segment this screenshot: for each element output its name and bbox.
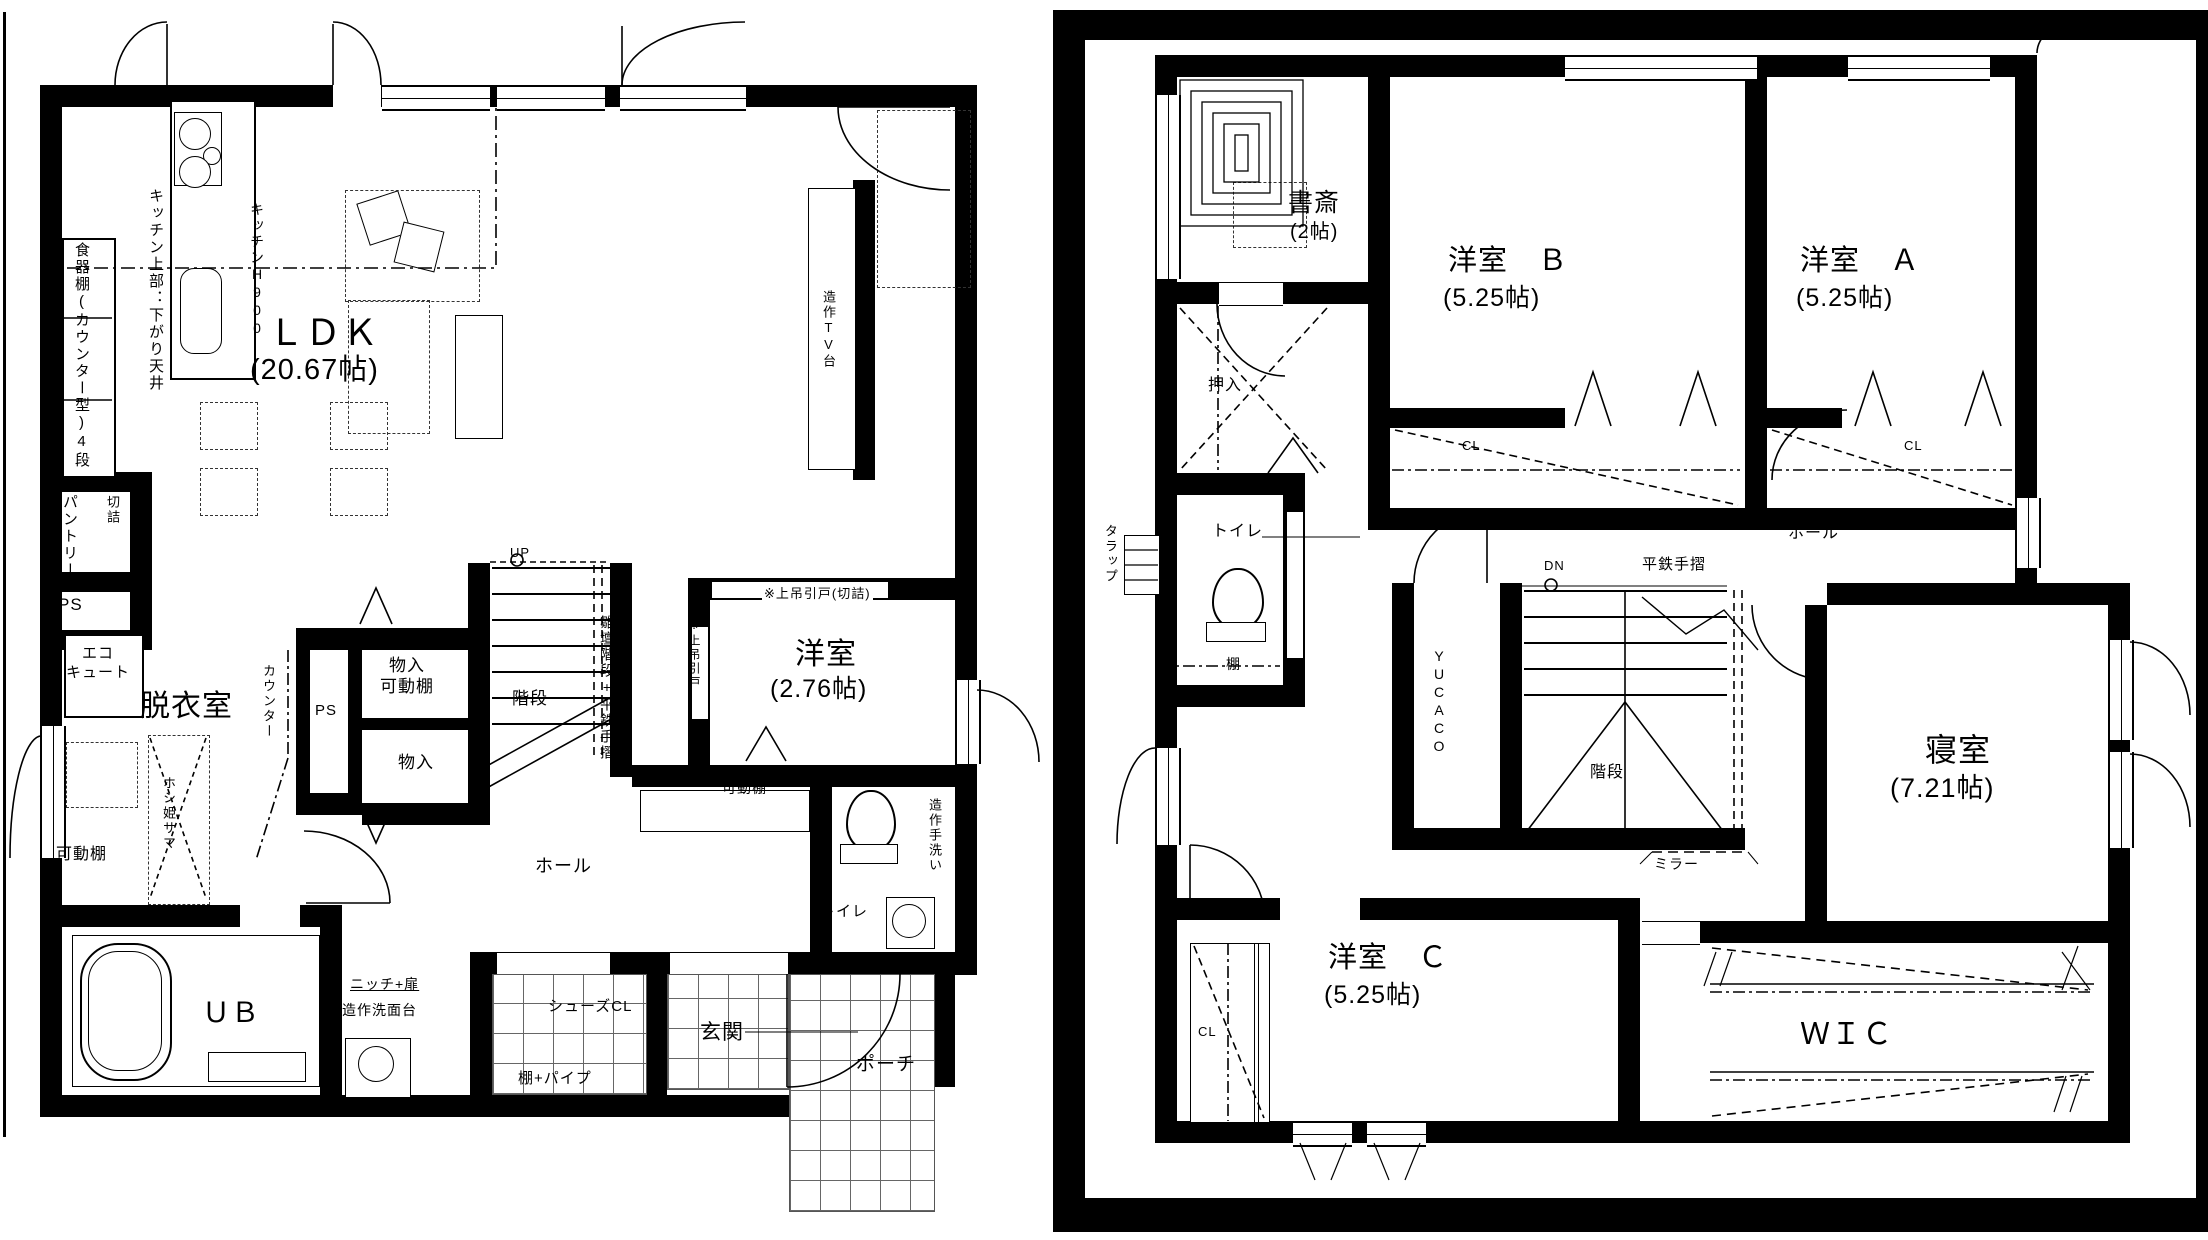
label-f1-slide_note2: ※上吊引戸 <box>688 618 700 690</box>
label-f1-shelf_pipe: 棚+パイプ <box>518 1070 592 1089</box>
label-f2-room_a: 洋室 Ａ <box>1800 243 1920 279</box>
label-f2-cl_b: CL <box>1460 438 1483 454</box>
wall <box>470 952 492 1095</box>
label-f2-cl_c: CL <box>1196 1024 1219 1040</box>
wall <box>853 180 875 480</box>
toilet-tank <box>1206 622 1266 642</box>
wall <box>1368 508 1745 530</box>
label-f1-ub: ＵＢ <box>202 995 260 1030</box>
sliding-door-opening <box>670 952 788 976</box>
label-f1-porch: ポーチ <box>856 1053 916 1077</box>
wall <box>1745 77 1767 530</box>
window <box>40 726 66 858</box>
circle-fixture <box>358 1046 394 1082</box>
wall <box>933 974 955 1087</box>
wall <box>1392 828 1745 850</box>
label-f1-kitchen_upper: キッチン上部：下がり天井 <box>148 188 163 392</box>
wall <box>40 1095 791 1117</box>
sliding-door-opening <box>497 952 610 976</box>
wall <box>1767 408 1842 428</box>
label-f1-storage1: 物入 可動棚 <box>380 655 434 698</box>
fixture-outline <box>1124 535 1160 595</box>
window <box>382 85 490 111</box>
label-f1-tv: 造作TV台 <box>822 290 835 369</box>
label-f2-tarap: タラップ <box>1104 524 1117 584</box>
stair-treads <box>492 567 610 747</box>
wall <box>320 905 342 1117</box>
label-f1-room_size: (2.76帖) <box>770 674 867 705</box>
fixture-outline <box>208 1052 306 1082</box>
wall <box>1390 408 1565 428</box>
label-f2-mirror: ミラー <box>1652 856 1701 874</box>
label-f1-room: 洋室 <box>795 636 857 674</box>
label-f1-genkan: 玄関 <box>700 1020 744 1046</box>
dashed-furniture <box>66 742 138 808</box>
door-opening <box>1280 898 1360 920</box>
label-f2-bedroom_size: (7.21帖) <box>1890 772 1995 806</box>
label-f2-toilet: トイレ <box>1212 522 1263 542</box>
window <box>620 85 746 111</box>
label-f1-storage2: 物入 <box>398 752 434 773</box>
label-f1-ldk: ＬＤＫ <box>268 310 379 355</box>
stair-treads <box>1524 590 1727 714</box>
label-f2-tana: 棚 <box>1224 656 1243 674</box>
fixture-outline <box>310 650 348 793</box>
dashed-furniture <box>200 402 258 450</box>
label-f1-handwash: 造作手洗い <box>928 798 941 873</box>
frame-left <box>1053 10 1085 1232</box>
label-f2-dn: DN <box>1542 558 1567 574</box>
label-f1-shoes: シューズCL <box>548 998 632 1017</box>
sliding-door-opening <box>1286 512 1304 658</box>
floor-plan-page: 食器棚(カウンター型)4段キッチン上部：下がり天井キッチンH900ＬＤＫ(20.… <box>0 0 2208 1240</box>
dashed-furniture <box>330 468 388 516</box>
wall <box>1392 583 1414 837</box>
label-f1-slide_note: ※上吊引戸(切詰) <box>762 586 873 602</box>
label-f2-wic: ＷＩＣ <box>1800 1016 1893 1054</box>
wall <box>1805 605 1827 921</box>
label-f2-study: 書斎 <box>1288 188 1340 219</box>
label-f2-room_a_size: (5.25帖) <box>1796 283 1893 314</box>
wall <box>1155 685 1305 707</box>
sliding-door-opening <box>1219 282 1283 306</box>
label-f2-hall: ホール <box>1788 524 1839 544</box>
label-f2-cl_a: CL <box>1902 438 1925 454</box>
circle-fixture <box>892 904 926 938</box>
label-f1-washstand: 造作洗面台 <box>342 1002 417 1020</box>
fixture-outline <box>88 951 162 1071</box>
label-f1-toilet: トイレ <box>820 903 868 922</box>
label-f2-oshiire: 押入 <box>1206 376 1244 396</box>
window <box>955 680 981 764</box>
label-f2-handrail: 平鉄手摺 <box>1640 556 1708 575</box>
label-f1-hall: ホール <box>535 855 592 878</box>
door-opening <box>1754 583 1827 605</box>
label-f2-stairs: 階段 <box>1588 763 1626 783</box>
frame-bottom <box>1053 1198 2208 1232</box>
wall <box>1500 583 1522 837</box>
label-f2-room_b_size: (5.25帖) <box>1443 283 1540 314</box>
frame-right <box>2196 10 2208 1232</box>
window <box>2108 752 2134 848</box>
label-f1-up: UP <box>508 545 532 561</box>
label-f2-study_size: (2帖) <box>1290 220 1338 245</box>
door-opening <box>240 905 300 927</box>
circle-fixture <box>179 118 211 150</box>
label-f1-pantry: パントリー <box>62 494 77 579</box>
dashed-furniture <box>877 110 971 288</box>
tiled-floor <box>789 974 935 1212</box>
toilet-bowl <box>1212 568 1264 630</box>
window <box>1565 55 1757 81</box>
label-f2-bedroom: 寝室 <box>1925 730 1991 770</box>
window <box>1293 1121 1352 1147</box>
fixture-outline <box>455 315 503 439</box>
window <box>2015 498 2041 568</box>
wall <box>632 765 955 787</box>
label-f1-ecocute: エコ キュート <box>66 645 130 683</box>
label-f1-stairs: 階段 <box>512 688 548 709</box>
label-f2-room_c_size: (5.25帖) <box>1324 980 1421 1011</box>
label-f1-kadodana2: 可動棚 <box>722 780 767 798</box>
label-f1-stair_note: 雛壇階段+平鉄手摺 <box>600 615 614 761</box>
wall <box>1700 921 2130 943</box>
dashed-furniture <box>330 402 388 450</box>
wall <box>468 563 490 825</box>
label-f1-hoshihime: ホシ姫サマ <box>162 776 175 851</box>
fixture-outline <box>1254 943 1259 1123</box>
window <box>1155 748 1181 845</box>
wall <box>1827 583 2130 605</box>
label-f2-room_c: 洋室 Ｃ <box>1328 940 1448 976</box>
label-f2-yucaco: YUCACO <box>1432 648 1446 756</box>
wall <box>1618 898 1640 1143</box>
window <box>2108 640 2134 740</box>
window <box>1155 95 1181 279</box>
frame-top <box>1053 10 2208 40</box>
label-f1-kiritsume: ※切詰 <box>106 478 119 525</box>
label-f1-datsuishitsu: 脱衣室 <box>140 688 233 726</box>
wall <box>130 472 152 650</box>
label-f1-kadodana: 可動棚 <box>56 845 107 865</box>
window <box>1367 1121 1426 1147</box>
label-f1-kitchen_h: キッチンH900 <box>250 202 264 338</box>
dashed-furniture <box>200 468 258 516</box>
sliding-door-opening <box>1642 921 1700 945</box>
wall <box>810 787 832 952</box>
circle-fixture <box>179 156 211 188</box>
label-f1-cupboard: 食器棚(カウンター型)4段 <box>74 242 89 469</box>
toilet-bowl <box>846 790 896 852</box>
window <box>1848 55 1990 81</box>
door-opening <box>333 85 381 107</box>
label-f1-niche: ニッチ+扉 <box>350 976 419 994</box>
label-f1-ldk_size: (20.67帖) <box>250 352 379 388</box>
wall <box>1155 898 1618 920</box>
label-f1-counter: カウンター <box>262 664 275 739</box>
page-edge-line <box>3 12 6 1137</box>
toilet-tank <box>840 844 898 864</box>
fixture-outline <box>180 268 222 354</box>
label-f1-ps2: PS <box>315 702 337 721</box>
window <box>497 85 605 111</box>
dashed-furniture <box>148 735 210 905</box>
wall <box>645 974 667 1095</box>
label-f1-ps1: PS <box>58 594 83 615</box>
label-f2-room_b: 洋室 Ｂ <box>1448 243 1568 279</box>
